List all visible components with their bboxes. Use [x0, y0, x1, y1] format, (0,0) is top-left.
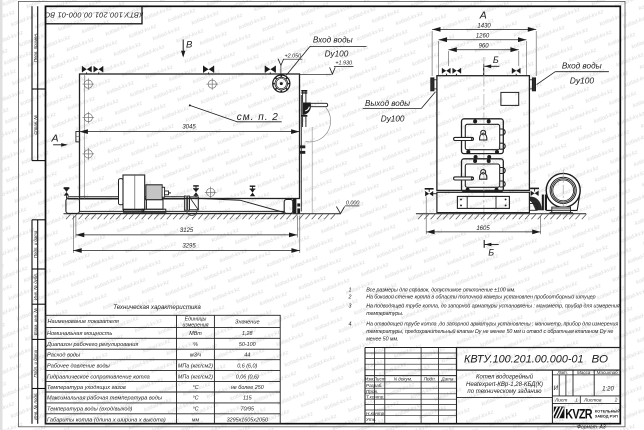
svg-text:Б: Б — [493, 55, 499, 65]
svg-text:1: 1 — [349, 288, 352, 294]
svg-text:см. п. 2: см. п. 2 — [237, 112, 279, 123]
svg-text:Взам. инв. №: Взам. инв. № — [33, 308, 38, 335]
svg-text:°С: °С — [192, 396, 198, 402]
svg-text:1:20: 1:20 — [602, 386, 614, 392]
svg-text:Все размеры для справок, допус: Все размеры для справок, допустимое откл… — [366, 288, 515, 294]
svg-text:0,06 (0,6): 0,06 (0,6) — [236, 374, 259, 380]
svg-text:И: И — [554, 386, 559, 392]
svg-text:Т.контр.: Т.контр. — [366, 395, 385, 400]
svg-text:Котел водогрейный: Котел водогрейный — [476, 373, 534, 380]
svg-text:Б: Б — [488, 247, 494, 257]
svg-text:2: 2 — [348, 295, 352, 301]
svg-text:КВТУ.100.201.00.000-01: КВТУ.100.201.00.000-01 — [464, 354, 584, 366]
svg-text:Выход воды: Выход воды — [365, 99, 410, 108]
svg-text:В: В — [186, 40, 193, 51]
svg-text:Лист: Лист — [554, 398, 567, 404]
svg-text:Дата: Дата — [440, 376, 454, 381]
svg-text:Справ. №: Справ. № — [33, 115, 38, 135]
svg-text:измерения: измерения — [183, 322, 209, 328]
svg-text:°С: °С — [192, 407, 198, 413]
svg-text:А: А — [51, 132, 59, 144]
svg-text:Максимальная рабочая температу: Максимальная рабочая температура воды — [47, 396, 162, 402]
svg-text:3125: 3125 — [180, 228, 194, 234]
svg-text:Рабочее давление воды: Рабочее давление воды — [47, 363, 110, 369]
svg-text:Температура уходящих газов: Температура уходящих газов — [47, 385, 126, 391]
svg-text:1: 1 — [575, 398, 578, 404]
svg-text:Номинальная мощность: Номинальная мощность — [47, 331, 112, 337]
svg-text:+2.050: +2.050 — [285, 54, 302, 60]
svg-text:°С: °С — [192, 385, 198, 391]
svg-text:Утв.: Утв. — [366, 417, 376, 422]
svg-text:ЗАВОД РЭП: ЗАВОД РЭП — [595, 413, 618, 418]
svg-text:не более 250: не более 250 — [231, 385, 264, 391]
svg-text:На подводящей трубе котла, до: На подводящей трубе котла, до запорной а… — [366, 302, 620, 309]
svg-text:50-100: 50-100 — [239, 342, 256, 348]
svg-text:мм: мм — [192, 417, 200, 423]
svg-text:3295: 3295 — [182, 244, 196, 250]
svg-text:2: 2 — [614, 398, 618, 404]
svg-text:Heatexpert-КВр-1,28-КБД(К): Heatexpert-КВр-1,28-КБД(К) — [466, 382, 543, 388]
svg-text:А: А — [479, 9, 487, 21]
svg-text:Вход воды: Вход воды — [313, 36, 353, 45]
svg-text:Н.контр.: Н.контр. — [366, 411, 385, 416]
svg-text:Инв. № подл.: Инв. № подл. — [33, 392, 38, 419]
svg-text:Перв. примен.: Перв. примен. — [33, 33, 38, 62]
svg-text:4: 4 — [349, 321, 352, 327]
svg-text:Лист: Лист — [373, 376, 386, 381]
svg-text:А3: А3 — [599, 424, 606, 430]
svg-text:Инв. № дубл.: Инв. № дубл. — [33, 273, 38, 300]
svg-text:Подп.: Подп. — [424, 376, 436, 381]
svg-text:Наименование показателя: Наименование показателя — [48, 319, 119, 325]
svg-text:Диапазон рабочего регулировани: Диапазон рабочего регулирования — [46, 342, 138, 348]
svg-text:КВТУ.100.201.00.000-01 ВО: КВТУ.100.201.00.000-01 ВО — [44, 10, 143, 19]
svg-text:температуры.: температуры. — [366, 311, 403, 317]
svg-text:0,6 (6,0): 0,6 (6,0) — [237, 363, 257, 369]
svg-text:115: 115 — [243, 396, 253, 402]
svg-text:KVZR: KVZR — [565, 406, 592, 421]
svg-text:3045: 3045 — [182, 124, 196, 130]
svg-text:Температура воды (вход/выход): Температура воды (вход/выход) — [47, 407, 133, 413]
svg-text:Формат: Формат — [577, 424, 597, 430]
svg-text:1260: 1260 — [476, 34, 490, 40]
svg-text:менее 50 мм.: менее 50 мм. — [366, 337, 398, 343]
svg-text:3: 3 — [349, 303, 352, 309]
svg-text:Пров.: Пров. — [366, 389, 378, 394]
svg-text:МВт: МВт — [189, 331, 202, 337]
svg-text:Техническая характеристика: Техническая характеристика — [113, 304, 201, 311]
svg-text:3295х1605х2050: 3295х1605х2050 — [227, 417, 268, 423]
svg-text:температуры, предохранительный: температуры, предохранительный клапан Dу… — [366, 328, 613, 335]
svg-text:44: 44 — [244, 353, 250, 359]
svg-text:Значение: Значение — [235, 319, 260, 325]
svg-text:Разраб.: Разраб. — [366, 383, 383, 388]
svg-text:70/95: 70/95 — [241, 407, 255, 413]
svg-text:Лит.: Лит. — [556, 370, 568, 375]
svg-text:МПа (кгс/см2): МПа (кгс/см2) — [178, 363, 213, 369]
svg-text:На отводящей трубе котла ,до з: На отводящей трубе котла ,до запорной ар… — [366, 320, 618, 327]
svg-text:Подп. и дата: Подп. и дата — [33, 230, 38, 258]
svg-text:%: % — [193, 342, 198, 348]
svg-text:Dy100: Dy100 — [325, 49, 349, 58]
svg-text:1,28: 1,28 — [242, 331, 253, 337]
svg-text:1605: 1605 — [476, 226, 490, 232]
svg-text:Расход воды: Расход воды — [47, 353, 80, 359]
svg-text:МПа (кгс/см2): МПа (кгс/см2) — [178, 374, 213, 380]
svg-text:Масштаб: Масштаб — [597, 370, 618, 375]
svg-text:по техническому заданию: по техническому заданию — [467, 389, 542, 395]
svg-text:На боковой стенке котла в обла: На боковой стенке котла в области топочн… — [366, 294, 595, 301]
svg-text:м3/ч: м3/ч — [190, 353, 201, 359]
svg-text:Габариты котла (длина х ширина: Габариты котла (длина х ширина х высота) — [47, 417, 166, 423]
svg-text:Листов: Листов — [583, 398, 602, 404]
svg-text:ВО: ВО — [592, 354, 609, 366]
svg-text:Dy100: Dy100 — [570, 75, 595, 85]
svg-text:960: 960 — [479, 44, 490, 50]
svg-text:Масса: Масса — [577, 370, 591, 375]
svg-text:Подп. и дата: Подп. и дата — [33, 349, 38, 377]
svg-text:N докум.: N докум. — [394, 376, 413, 381]
svg-text:Dy100: Dy100 — [381, 115, 405, 124]
svg-text:Гидравлическое сопротивление к: Гидравлическое сопротивление котла — [47, 374, 150, 380]
svg-text:1430: 1430 — [477, 23, 491, 29]
svg-text:+1.930: +1.930 — [335, 61, 352, 67]
svg-text:Вход воды: Вход воды — [562, 62, 602, 71]
